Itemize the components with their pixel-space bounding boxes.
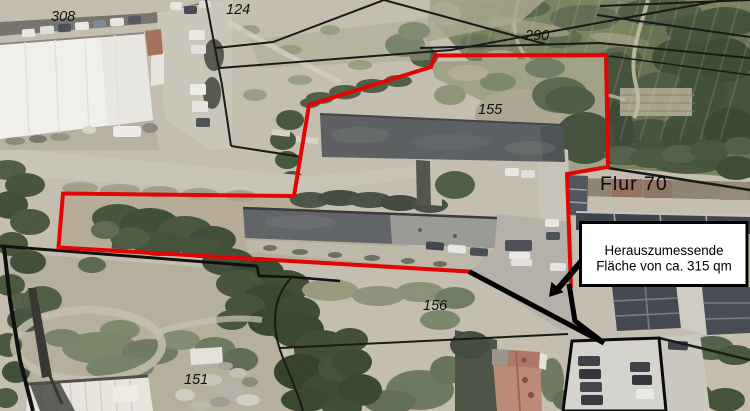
svg-text:155: 155: [478, 102, 503, 118]
svg-text:151: 151: [184, 372, 208, 388]
svg-text:Fläche von ca. 315 qm: Fläche von ca. 315 qm: [596, 259, 731, 274]
svg-text:290: 290: [524, 28, 549, 44]
svg-text:124: 124: [226, 2, 250, 18]
svg-text:156: 156: [423, 298, 448, 314]
svg-text:308: 308: [51, 9, 75, 25]
svg-text:Flur 70: Flur 70: [600, 173, 668, 195]
svg-text:Herauszumessende: Herauszumessende: [604, 243, 723, 258]
